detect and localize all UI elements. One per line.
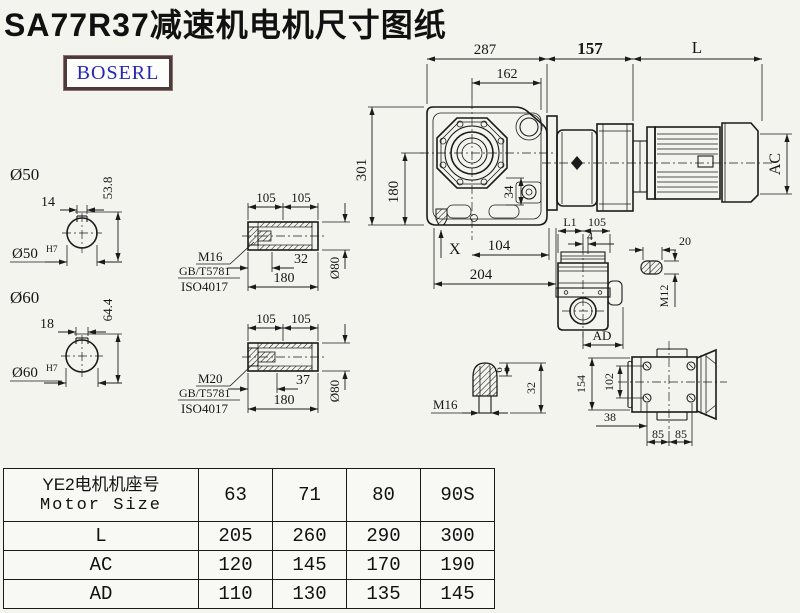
AC-80: 170: [347, 551, 421, 580]
sec2-105a: 105: [256, 311, 276, 326]
dim-85b: 85: [675, 427, 687, 441]
dim-104: 104: [488, 238, 511, 254]
row-label-AD: AD: [4, 580, 199, 609]
dim-157: 157: [577, 39, 603, 58]
drawing-sheet: SA77R37减速机电机尺寸图纸 BOSERL: [0, 0, 800, 613]
motor-size-label-cn: YE2电机机座号: [4, 474, 198, 495]
dim-14: 14: [41, 195, 55, 210]
AC-71: 145: [273, 551, 347, 580]
dim-32-cone: 32: [524, 382, 538, 394]
L-71: 260: [273, 522, 347, 551]
size-80: 80: [347, 469, 421, 522]
bore-60-tol: H7: [46, 364, 58, 374]
AC-90s: 190: [421, 551, 495, 580]
dim-6: 6: [493, 367, 505, 373]
sec1-std2: ISO4017: [181, 279, 228, 294]
L-90s: 300: [421, 522, 495, 551]
sec2-thread: M20: [198, 371, 223, 386]
L-63: 205: [199, 522, 273, 551]
bore-50-tol: H7: [46, 245, 58, 255]
shaft60-label: Ø60: [10, 288, 39, 307]
plug-m12-detail: 20 M12: [629, 234, 691, 307]
sec1-105b: 105: [291, 190, 311, 205]
sec2-std1: GB/T5781: [179, 386, 230, 400]
dim-180-left: 180: [386, 181, 402, 204]
dim-L1: L1: [563, 215, 576, 229]
dim-204: 204: [470, 267, 493, 283]
sec1-dia: Ø80: [327, 257, 342, 279]
AD-71: 130: [273, 580, 347, 609]
shaft-50-detail: Ø50 14 53.8 Ø50 H7: [10, 165, 122, 266]
AD-63: 110: [199, 580, 273, 609]
cone-m16-detail: M16 6 32: [431, 363, 546, 413]
dim-34: 34: [501, 185, 516, 199]
AD-90s: 145: [421, 580, 495, 609]
hollow-shaft-section-m20: 105 105 M20 GB/T5781 ISO4017 37 180 Ø80: [178, 311, 350, 416]
mounting-bolt-hatched: [436, 209, 447, 225]
dim-20: 20: [679, 234, 691, 248]
sec1-105a: 105: [256, 190, 276, 205]
dim-X: X: [449, 241, 461, 258]
row-label-L: L: [4, 522, 199, 551]
table-header-row: YE2电机机座号 Motor Size 63 71 80 90S: [4, 469, 495, 522]
ac-dimension: AC: [760, 134, 792, 194]
dim-38: 38: [604, 410, 616, 424]
dim-287: 287: [474, 42, 497, 58]
dim-53-8: 53.8: [100, 177, 115, 200]
shaft50-label: Ø50: [10, 165, 39, 184]
sec2-105b: 105: [291, 311, 311, 326]
dim-4: 4: [587, 229, 593, 243]
technical-drawing: 287 162 157 L 301 180 X 104: [0, 0, 800, 465]
dim-AD: AD: [593, 328, 612, 343]
sec2-bolt-len: 37: [296, 373, 310, 388]
sec1-std1: GB/T5781: [179, 264, 230, 278]
sec2-std2: ISO4017: [181, 401, 228, 416]
size-71: 71: [273, 469, 347, 522]
dim-AC: AC: [767, 153, 784, 175]
plug-thread: M12: [657, 285, 671, 308]
row-label-AC: AC: [4, 551, 199, 580]
motor-size-label-en: Motor Size: [4, 495, 198, 516]
gearbox-side-view: L1 105 4 AD: [556, 215, 623, 349]
size-90s: 90S: [421, 469, 495, 522]
sec2-total: 180: [274, 393, 295, 408]
dim-85a: 85: [652, 427, 664, 441]
size-63: 63: [199, 469, 273, 522]
dim-64-4: 64.4: [100, 298, 115, 321]
dim-18: 18: [40, 317, 54, 332]
motor-side-view: [542, 116, 773, 211]
sec1-total: 180: [274, 271, 295, 286]
dim-102: 102: [602, 373, 616, 391]
table-row-AC: AC 120 145 170 190: [4, 551, 495, 580]
motor-size-table: YE2电机机座号 Motor Size 63 71 80 90S L 205 2…: [3, 468, 495, 609]
cone-thread: M16: [433, 397, 458, 412]
sec1-bolt-len: 32: [294, 252, 308, 267]
sec2-dia: Ø80: [327, 380, 342, 402]
top-dimensions: 287 162 157 L: [427, 38, 762, 121]
dim-154: 154: [574, 375, 588, 393]
table-row-L: L 205 260 290 300: [4, 522, 495, 551]
table-header-cell: YE2电机机座号 Motor Size: [4, 469, 199, 522]
dim-301: 301: [354, 159, 370, 182]
bore-60-label: Ø60: [12, 365, 38, 381]
gearbox-front-view: [420, 100, 553, 240]
shaft-60-detail: Ø60 18 64.4 Ø60 H7: [10, 288, 122, 387]
L-80: 290: [347, 522, 421, 551]
dim-105-side: 105: [588, 215, 606, 229]
bore-50-label: Ø50: [12, 246, 38, 262]
main-bottom-dimensions: X 104 204 34: [434, 178, 556, 289]
dim-L: L: [692, 38, 702, 57]
gearbox-top-view: 154 102 38 85 85: [574, 341, 727, 446]
AC-63: 120: [199, 551, 273, 580]
AD-80: 135: [347, 580, 421, 609]
left-dimensions: 301 180: [354, 107, 424, 225]
dim-162: 162: [497, 67, 518, 82]
hollow-shaft-section-m16: 105 105 M16 GB/T5781 ISO4017 32 180 Ø80: [178, 190, 350, 294]
sec1-thread: M16: [198, 249, 223, 264]
table-row-AD: AD 110 130 135 145: [4, 580, 495, 609]
